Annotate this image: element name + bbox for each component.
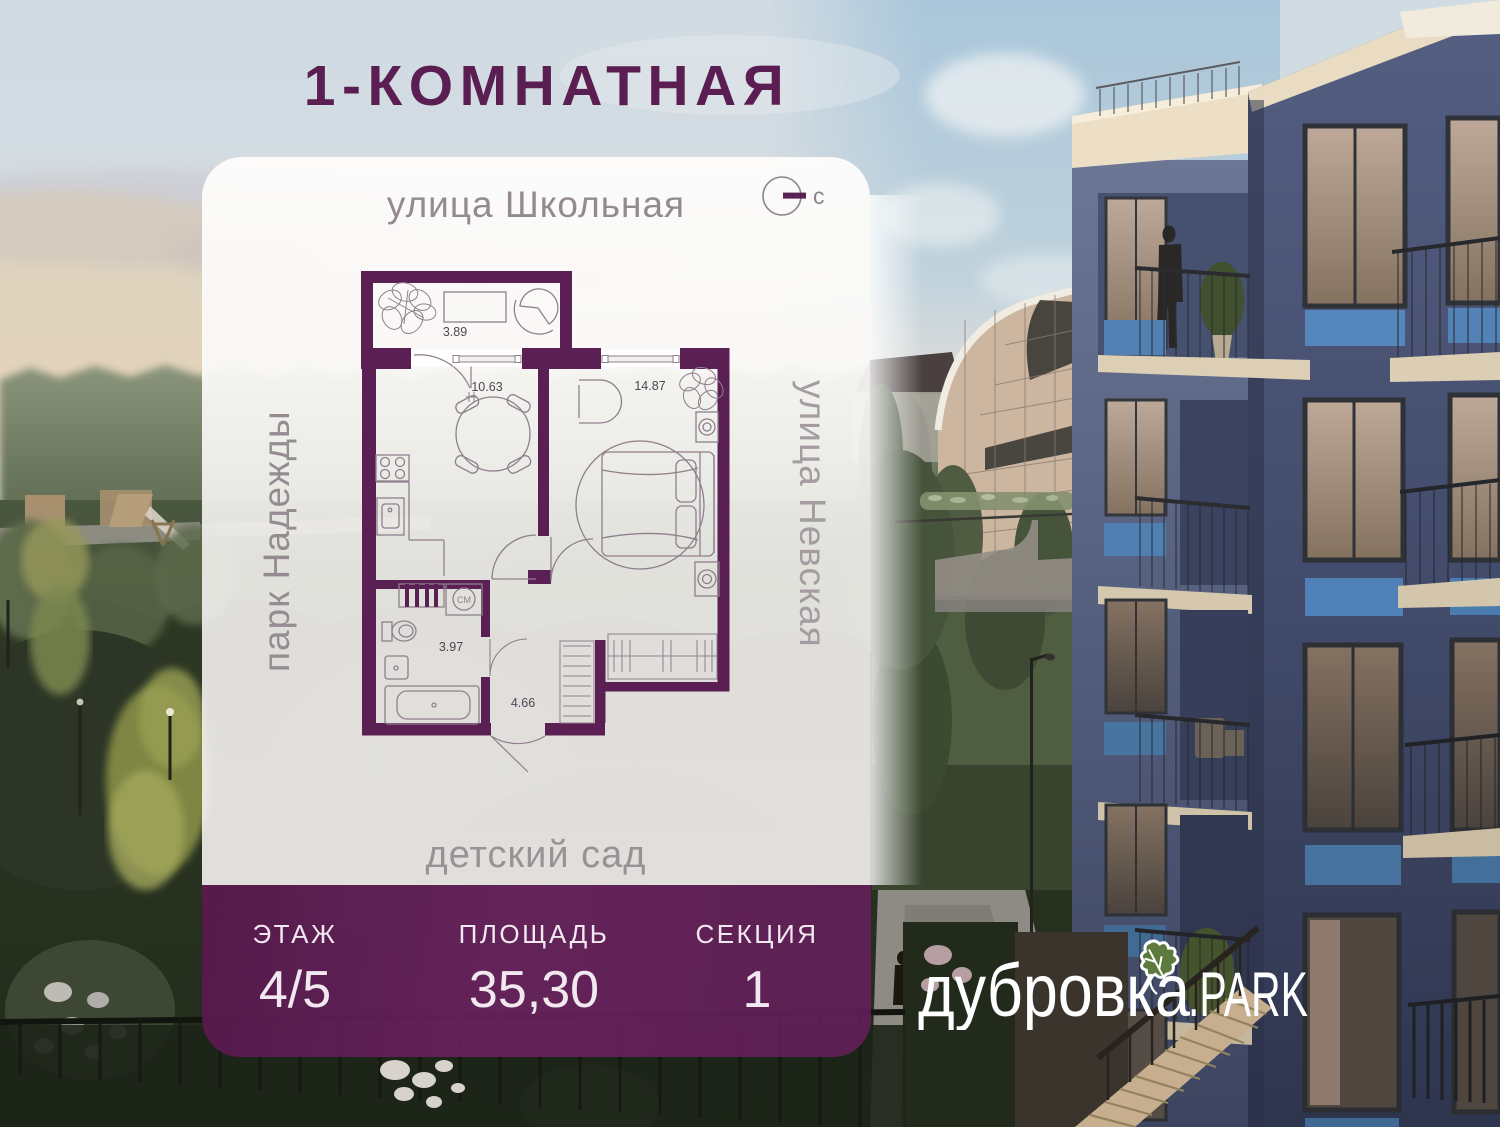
svg-text:3.89: 3.89	[443, 325, 467, 339]
svg-text:10.63: 10.63	[471, 380, 502, 394]
svg-text:с: с	[813, 183, 825, 209]
svg-text:.PARK: .PARK	[1188, 960, 1308, 1030]
svg-text:14.87: 14.87	[634, 379, 665, 393]
svg-text:дубровка: дубровка	[918, 949, 1191, 1030]
svg-text:СМ: СМ	[457, 595, 471, 605]
svg-text:4.66: 4.66	[511, 696, 535, 710]
svg-text:3.97: 3.97	[439, 640, 463, 654]
